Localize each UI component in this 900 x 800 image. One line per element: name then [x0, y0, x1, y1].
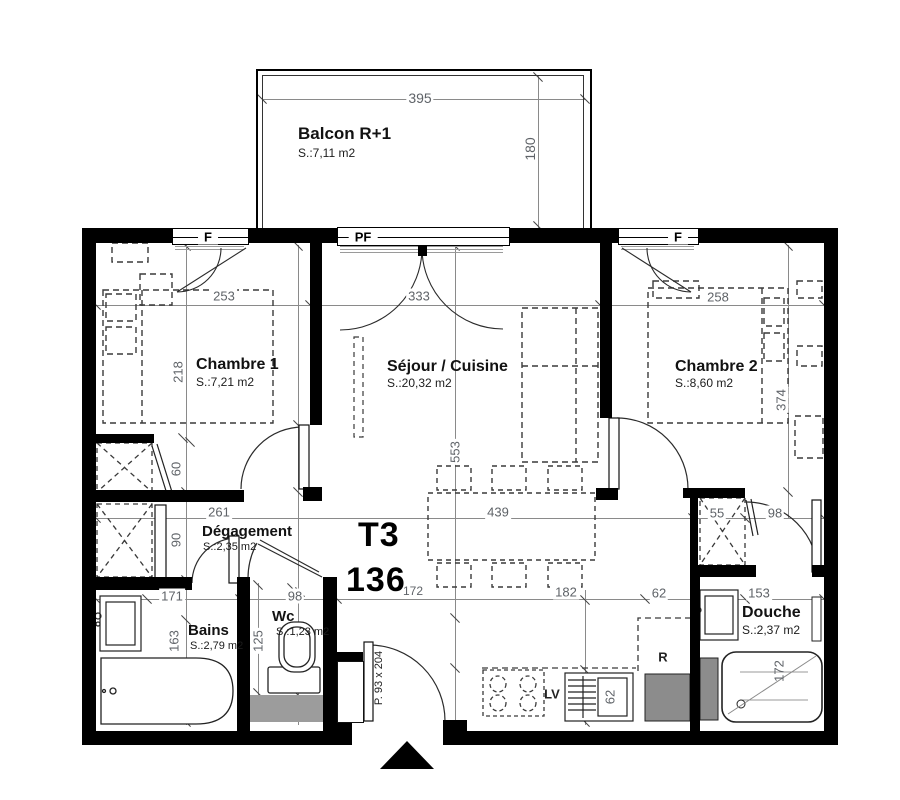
wall-douche-left — [690, 572, 700, 731]
wc-name: Wc — [272, 608, 295, 625]
balcon-area: S.:7,11 m2 — [298, 146, 355, 160]
balcon-name: Balcon R+1 — [298, 124, 391, 144]
sejour-area: S.:20,32 m2 — [387, 376, 452, 390]
douche-sink — [695, 590, 738, 640]
chambre2-area: S.:8,60 m2 — [675, 376, 733, 390]
dim-chambre2-depth: 374 — [774, 387, 789, 413]
wall-closet-top — [96, 434, 154, 443]
towel-rail — [812, 597, 821, 641]
dim-balcon-depth: 180 — [522, 135, 538, 162]
dim-douche-diag: 172 — [772, 658, 787, 684]
unit-type: T3 — [358, 516, 400, 555]
window-swing-f2 — [622, 248, 691, 292]
wall-top-mid1 — [247, 228, 337, 243]
dim-closet2-width: 55 — [708, 506, 726, 521]
dim-sejour-depth: 553 — [448, 439, 463, 465]
dim-sejour-inner-width: 439 — [485, 505, 511, 520]
tv-unit — [354, 337, 363, 437]
door-leaf-wc — [258, 544, 322, 577]
dim-douche-width: 153 — [746, 586, 772, 601]
closet-lower-door — [155, 505, 166, 578]
dim-closet-lower: 90 — [169, 531, 184, 549]
sejour-name: Séjour / Cuisine — [387, 358, 508, 376]
fridge-label: R — [656, 650, 669, 665]
wall-closet2-left — [690, 498, 698, 568]
dim-chambre1-depth: 218 — [171, 359, 186, 385]
dishwasher-label: LV — [542, 687, 562, 702]
dining-table — [428, 466, 595, 587]
door-leaf-chambre2 — [609, 418, 619, 489]
wall-top-mid2 — [508, 228, 618, 243]
window-pf-label: PF — [349, 230, 378, 245]
wall-douche-top-right — [812, 565, 824, 577]
bains-name: Bains — [188, 622, 229, 639]
window-swing-f1 — [177, 248, 246, 292]
door-leaf-douche — [812, 500, 821, 572]
pf-mullion — [418, 246, 427, 256]
wall-top-right — [697, 228, 838, 243]
door-leaf-chambre1 — [299, 425, 309, 489]
dim-sink-depth: 62 — [603, 688, 618, 706]
wall-chambre1-sejour — [310, 243, 322, 425]
entrance-door-size: P. 93 x 204 — [373, 649, 385, 707]
kitchen-sink — [565, 673, 633, 721]
entrance-marker — [380, 741, 434, 769]
wall-douche-top — [690, 565, 756, 577]
symbols-layer — [0, 0, 900, 800]
chambre1-area: S.:7,21 m2 — [196, 375, 254, 389]
unit-number: 136 — [346, 561, 406, 600]
washing-machine — [700, 658, 718, 720]
electrical-panel — [337, 661, 364, 723]
sofa — [522, 308, 598, 462]
bed-chambre1 — [103, 243, 273, 423]
chambre1-name: Chambre 1 — [196, 356, 279, 374]
floor-plan: F PF F Balcon R+1 S.:7,11 m2 Chambre 1 S… — [0, 0, 900, 800]
wall-wc-right — [323, 577, 337, 731]
degagement-name: Dégagement — [202, 523, 292, 540]
wall-sejour-chambre2 — [600, 243, 612, 418]
fridge — [645, 674, 690, 721]
wall-right — [824, 228, 838, 745]
door-arc-chambre1 — [241, 427, 303, 489]
bathtub — [101, 658, 233, 724]
chambre2-name: Chambre 2 — [675, 358, 758, 376]
dim-closet-upper: 60 — [169, 460, 184, 478]
closet-upper — [97, 443, 152, 492]
wc-floor-mat — [250, 695, 323, 722]
window-f2-label: F — [668, 230, 688, 245]
dim-fridge-width: 62 — [650, 586, 668, 601]
degagement-area: S.:2,35 m2 — [203, 541, 256, 553]
bains-sink — [95, 596, 141, 651]
wall-bottom-right — [467, 731, 838, 745]
entrance-jamb-left — [337, 720, 352, 745]
dim-chambre2-width: 258 — [705, 290, 731, 305]
dim-balcon-width: 395 — [406, 90, 433, 106]
wall-closet2-top — [683, 488, 745, 498]
dim-bains-depth: 163 — [167, 628, 182, 654]
wall-elec-stub — [337, 652, 363, 661]
wc-area: S.:1,23 m2 — [276, 626, 329, 638]
wall-sejour-chambre2-cap — [596, 488, 618, 500]
wall-bottom-left — [82, 731, 337, 745]
wall-bains-wc — [237, 577, 250, 731]
door-arc-chambre2 — [617, 418, 688, 489]
door-leaf-entrance — [364, 642, 373, 721]
cooktop — [483, 670, 544, 716]
dim-chambre1-width: 253 — [211, 289, 237, 304]
dim-degagement-width: 261 — [206, 505, 232, 520]
dim-wc-depth: 125 — [251, 628, 266, 654]
wall-left — [82, 228, 96, 745]
dim-kitchen-width: 182 — [553, 585, 579, 600]
closet-lower — [97, 504, 152, 577]
dim-wc-width: 98 — [286, 589, 304, 604]
dim-bains-width: 171 — [159, 589, 185, 604]
entrance-jamb-right — [443, 720, 467, 745]
bains-area: S.:2,79 m2 — [190, 640, 243, 652]
wall-chambre1-sejour-cap — [303, 487, 322, 501]
wall-degagement-top — [96, 490, 244, 502]
dim-sejour-width: 333 — [406, 289, 432, 304]
window-f1-label: F — [198, 230, 218, 245]
douche-name: Douche — [742, 604, 801, 622]
douche-area: S.:2,37 m2 — [742, 623, 800, 637]
dim-douche-entry: 98 — [766, 506, 784, 521]
